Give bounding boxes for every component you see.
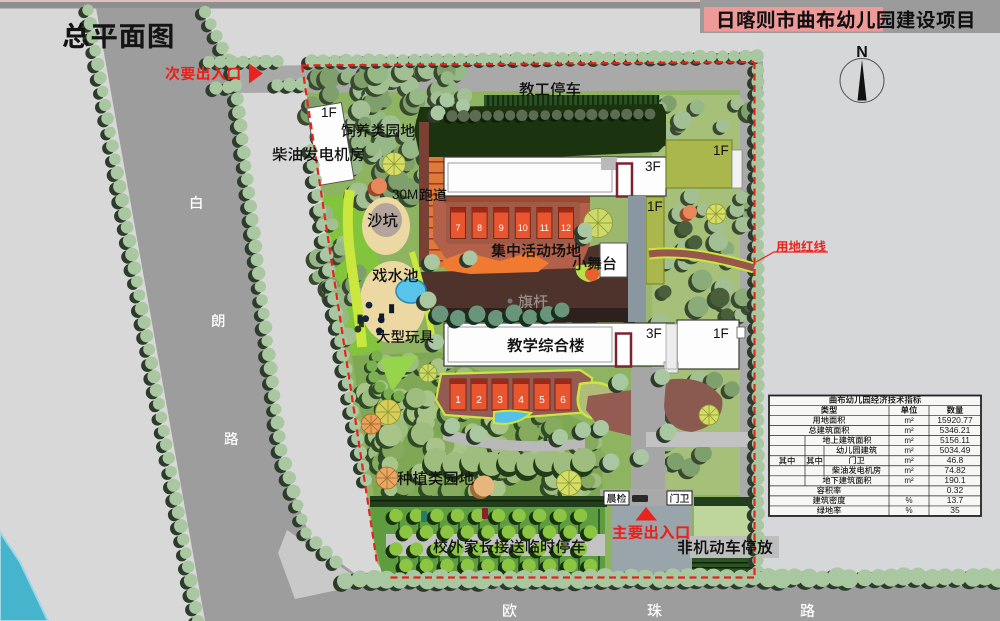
svg-text:1F: 1F — [713, 326, 729, 341]
svg-text:1F: 1F — [713, 143, 729, 158]
svg-text:3F: 3F — [645, 159, 661, 174]
svg-text:5156.11: 5156.11 — [940, 435, 970, 445]
svg-text:5: 5 — [539, 395, 545, 406]
svg-text:1F: 1F — [321, 105, 337, 120]
svg-text:m²: m² — [904, 436, 914, 445]
svg-text:74.82: 74.82 — [944, 465, 966, 475]
svg-text:5034.49: 5034.49 — [940, 445, 971, 455]
svg-text:m²: m² — [904, 426, 914, 435]
svg-text:15920.77: 15920.77 — [937, 415, 973, 425]
svg-text:11: 11 — [540, 223, 549, 233]
svg-text:30M: 30M — [392, 187, 418, 202]
svg-text:8: 8 — [477, 223, 482, 233]
svg-text:12: 12 — [561, 223, 571, 233]
svg-text:1F: 1F — [647, 199, 663, 214]
svg-text:13.7: 13.7 — [947, 495, 964, 505]
svg-text:7: 7 — [455, 223, 460, 233]
svg-text:9: 9 — [499, 223, 504, 233]
svg-text:46.8: 46.8 — [947, 455, 964, 465]
svg-text:3: 3 — [497, 395, 503, 406]
svg-text:3F: 3F — [646, 326, 662, 341]
svg-text:190.1: 190.1 — [944, 475, 966, 485]
svg-text:%: % — [905, 496, 912, 505]
svg-text:m²: m² — [904, 466, 914, 475]
svg-text:4: 4 — [518, 395, 524, 406]
svg-text:5346.21: 5346.21 — [940, 425, 971, 435]
svg-text:6: 6 — [560, 395, 566, 406]
svg-text:%: % — [905, 506, 912, 515]
svg-text:0.32: 0.32 — [947, 485, 964, 495]
svg-text:35: 35 — [950, 505, 960, 515]
svg-text:N: N — [856, 44, 868, 61]
svg-text:m²: m² — [904, 446, 914, 455]
svg-text:m²: m² — [904, 476, 914, 485]
svg-text:2: 2 — [476, 395, 482, 406]
svg-text:10: 10 — [518, 223, 528, 233]
svg-text:m²: m² — [904, 456, 914, 465]
svg-text:m²: m² — [904, 416, 914, 425]
svg-text:1: 1 — [455, 395, 461, 406]
